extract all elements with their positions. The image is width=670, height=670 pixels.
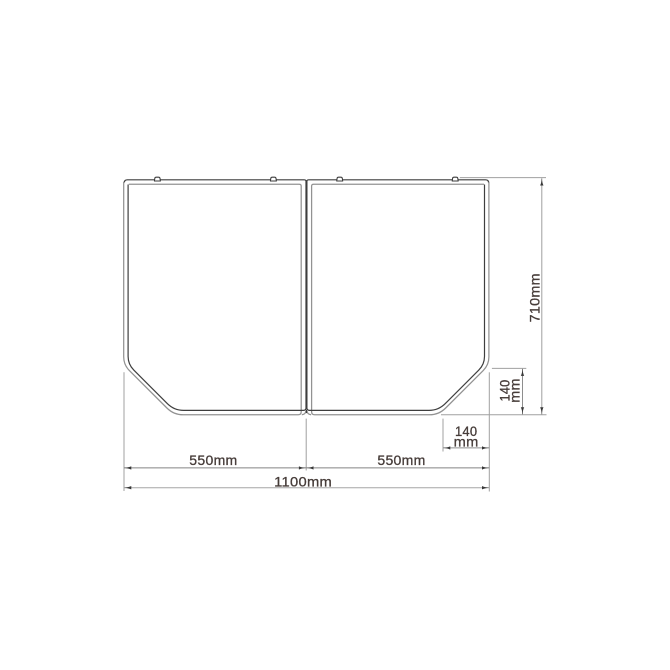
svg-text:710mm: 710mm (527, 273, 543, 322)
svg-text:mm: mm (454, 433, 479, 449)
svg-text:550mm: 550mm (377, 452, 425, 468)
svg-text:mm: mm (507, 378, 523, 403)
svg-text:550mm: 550mm (189, 452, 237, 468)
svg-text:1100mm: 1100mm (274, 473, 332, 489)
